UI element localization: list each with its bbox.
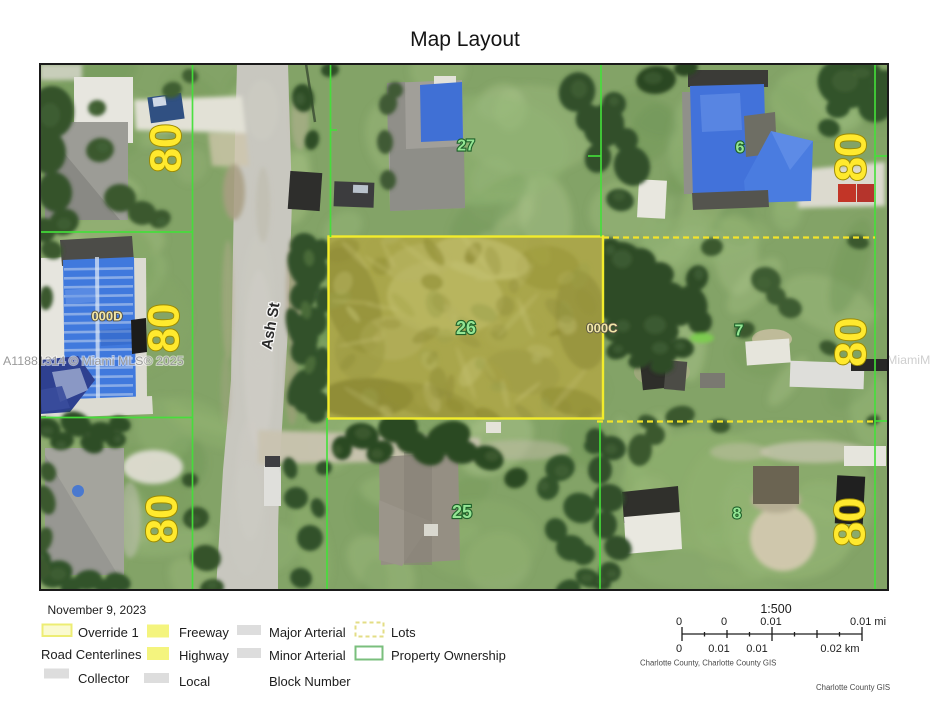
svg-text:Collector: Collector (78, 671, 130, 686)
svg-text:Highway: Highway (179, 648, 229, 663)
svg-text:80: 80 (142, 124, 191, 173)
svg-text:0.02 km: 0.02 km (820, 643, 859, 655)
svg-text:26: 26 (456, 318, 476, 338)
svg-text:27: 27 (457, 138, 475, 155)
svg-text:Charlotte County GIS: Charlotte County GIS (816, 683, 890, 692)
svg-text:0: 0 (676, 616, 682, 628)
svg-text:MiamiMLS: MiamiMLS (887, 353, 931, 367)
svg-text:000D: 000D (91, 309, 122, 324)
svg-text:November 9, 2023: November 9, 2023 (48, 603, 147, 617)
svg-text:80: 80 (138, 495, 187, 544)
svg-text:Charlotte County, Charlotte Co: Charlotte County, Charlotte County GIS (640, 659, 776, 668)
svg-text:Property Ownership: Property Ownership (391, 648, 506, 663)
svg-text:Map Layout: Map Layout (410, 28, 520, 51)
svg-text:0.01: 0.01 (760, 616, 781, 628)
svg-text:80: 80 (140, 304, 189, 353)
svg-text:Override 1: Override 1 (78, 625, 139, 640)
svg-text:80: 80 (827, 133, 876, 182)
svg-text:Local: Local (179, 674, 210, 689)
svg-text:0.01 mi: 0.01 mi (850, 616, 886, 628)
svg-text:A11881314 © Miami MLS® 2025: A11881314 © Miami MLS® 2025 (3, 354, 184, 368)
svg-text:8: 8 (733, 506, 742, 523)
svg-text:0.01: 0.01 (708, 643, 729, 655)
svg-text:0: 0 (676, 643, 682, 655)
svg-text:0.01: 0.01 (746, 643, 767, 655)
svg-text:000C: 000C (586, 321, 618, 336)
svg-text:80: 80 (826, 498, 875, 547)
svg-text:Block Number: Block Number (269, 674, 351, 689)
svg-text:0: 0 (721, 616, 727, 628)
svg-text:7: 7 (735, 323, 744, 340)
svg-text:25: 25 (452, 502, 472, 522)
svg-text:1:500: 1:500 (760, 602, 791, 616)
svg-text:Lots: Lots (391, 625, 416, 640)
svg-text:80: 80 (827, 318, 876, 367)
svg-text:Freeway: Freeway (179, 625, 229, 640)
svg-text:6: 6 (736, 140, 745, 157)
svg-text:Major Arterial: Major Arterial (269, 625, 346, 640)
svg-text:Minor Arterial: Minor Arterial (269, 648, 346, 663)
svg-text:Road Centerlines: Road Centerlines (41, 647, 142, 662)
